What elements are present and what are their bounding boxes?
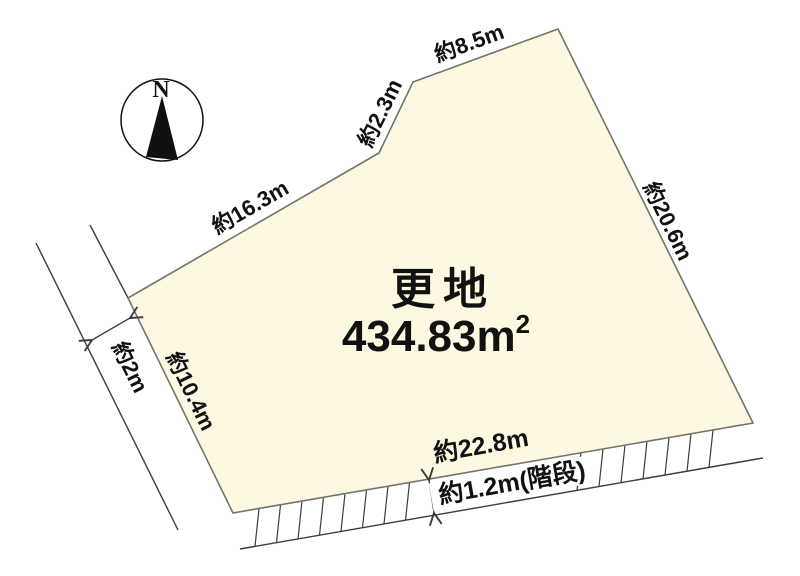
land-area-unit: m (476, 312, 515, 361)
land-type-label: 更地 (391, 265, 495, 314)
land-plot-diagram: 約16.3m 約2.3m 約8.5m 約20.6m 約10.4m 約2m 約22… (0, 0, 800, 576)
land-area-exponent: 2 (516, 309, 530, 339)
land-area-value-unit: 434.83 (342, 312, 477, 361)
land-area-label: 434.83m2 (342, 309, 530, 361)
